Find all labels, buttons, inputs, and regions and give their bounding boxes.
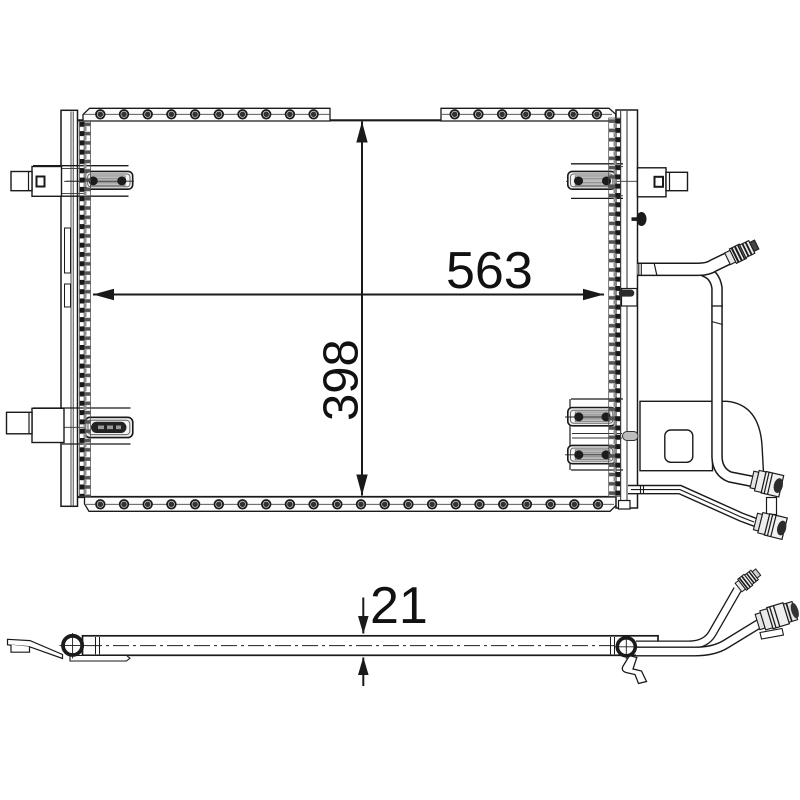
svg-text:398: 398 xyxy=(315,339,369,421)
svg-text:21: 21 xyxy=(370,577,428,635)
svg-text:563: 563 xyxy=(446,242,533,300)
